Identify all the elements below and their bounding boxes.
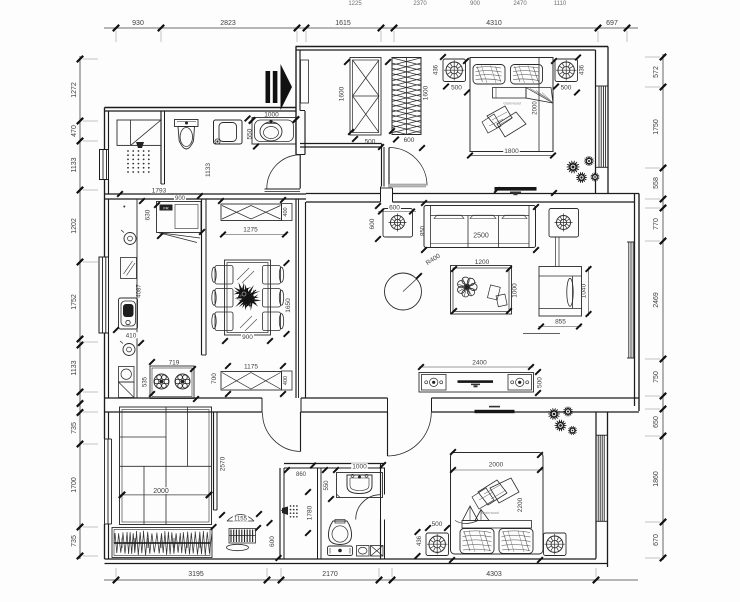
svg-text:855: 855 (555, 319, 566, 326)
svg-text:4303: 4303 (486, 571, 502, 578)
svg-text:1752: 1752 (71, 294, 78, 310)
svg-text:2000: 2000 (153, 488, 169, 495)
svg-text:436: 436 (434, 64, 440, 75)
svg-text:900: 900 (242, 334, 253, 341)
svg-text:860: 860 (296, 472, 307, 478)
svg-text:719: 719 (169, 360, 180, 367)
svg-text:2823: 2823 (220, 20, 236, 27)
svg-text:FR: FR (163, 205, 168, 210)
svg-text:1133: 1133 (205, 163, 212, 177)
svg-text:1155: 1155 (234, 517, 248, 523)
svg-text:550: 550 (247, 128, 254, 139)
svg-text:1200: 1200 (475, 259, 490, 266)
svg-text:1225: 1225 (348, 1, 362, 7)
svg-text:535: 535 (143, 376, 149, 387)
svg-text:930: 930 (132, 20, 144, 27)
svg-text:1000: 1000 (264, 112, 279, 119)
svg-text:600: 600 (389, 205, 400, 212)
svg-text:500: 500 (451, 85, 462, 92)
svg-text:1615: 1615 (335, 20, 351, 27)
svg-text:1700: 1700 (71, 477, 78, 493)
svg-text:572: 572 (653, 66, 660, 78)
svg-text:500: 500 (365, 139, 376, 146)
svg-text:1860: 1860 (653, 471, 660, 487)
svg-text:436: 436 (580, 64, 586, 75)
svg-text:1202: 1202 (71, 218, 78, 234)
svg-text:1133: 1133 (71, 360, 78, 375)
svg-text:600: 600 (404, 137, 415, 144)
svg-text:Grain wood: Grain wood (481, 511, 498, 515)
svg-text:2500: 2500 (473, 233, 489, 240)
svg-text:400: 400 (283, 207, 289, 216)
svg-text:Grain wood: Grain wood (503, 102, 520, 106)
svg-text:436: 436 (417, 535, 423, 546)
svg-text:1040: 1040 (581, 283, 588, 298)
svg-text:1650: 1650 (285, 298, 292, 313)
svg-text:700: 700 (211, 373, 218, 384)
svg-text:2170: 2170 (322, 571, 338, 578)
svg-text:550: 550 (324, 480, 330, 491)
svg-text:600: 600 (369, 218, 376, 229)
svg-text:2400: 2400 (472, 360, 487, 367)
svg-text:1000: 1000 (512, 283, 519, 298)
svg-text:1133: 1133 (71, 157, 78, 172)
svg-text:4087: 4087 (137, 284, 143, 298)
svg-text:735: 735 (71, 422, 78, 434)
svg-text:1600: 1600 (339, 86, 346, 101)
svg-text:1110: 1110 (554, 1, 567, 7)
svg-text:1750: 1750 (653, 119, 660, 135)
svg-text:1600: 1600 (423, 85, 430, 100)
svg-text:1793: 1793 (152, 188, 167, 195)
svg-text:1800: 1800 (504, 148, 519, 155)
svg-text:697: 697 (606, 20, 618, 27)
svg-text:2200: 2200 (517, 497, 524, 512)
svg-text:500: 500 (537, 377, 544, 388)
svg-text:900: 900 (175, 196, 186, 202)
svg-text:750: 750 (653, 371, 660, 383)
svg-text:900: 900 (470, 1, 481, 7)
svg-text:2370: 2370 (413, 1, 427, 7)
svg-text:410: 410 (126, 333, 137, 340)
svg-text:735: 735 (71, 535, 78, 547)
svg-text:470: 470 (71, 125, 78, 137)
svg-text:2570: 2570 (220, 456, 227, 471)
svg-text:650: 650 (653, 416, 660, 428)
svg-text:2000: 2000 (489, 462, 504, 469)
svg-text:1272: 1272 (71, 82, 78, 98)
svg-text:1000: 1000 (352, 464, 367, 471)
svg-text:500: 500 (432, 521, 443, 528)
svg-text:500: 500 (561, 85, 572, 92)
svg-text:2469: 2469 (653, 292, 660, 308)
svg-text:1175: 1175 (244, 364, 258, 371)
svg-text:600: 600 (269, 536, 276, 547)
svg-text:2000: 2000 (533, 101, 539, 115)
svg-text:400: 400 (283, 376, 289, 385)
svg-text:558: 558 (653, 177, 660, 189)
svg-text:4310: 4310 (486, 20, 502, 27)
svg-text:2470: 2470 (513, 1, 527, 7)
svg-text:3195: 3195 (188, 571, 204, 578)
svg-text:770: 770 (653, 218, 660, 230)
svg-text:1275: 1275 (243, 227, 258, 234)
svg-text:1780: 1780 (307, 505, 314, 520)
svg-text:630: 630 (145, 209, 152, 220)
svg-text:670: 670 (653, 534, 660, 546)
